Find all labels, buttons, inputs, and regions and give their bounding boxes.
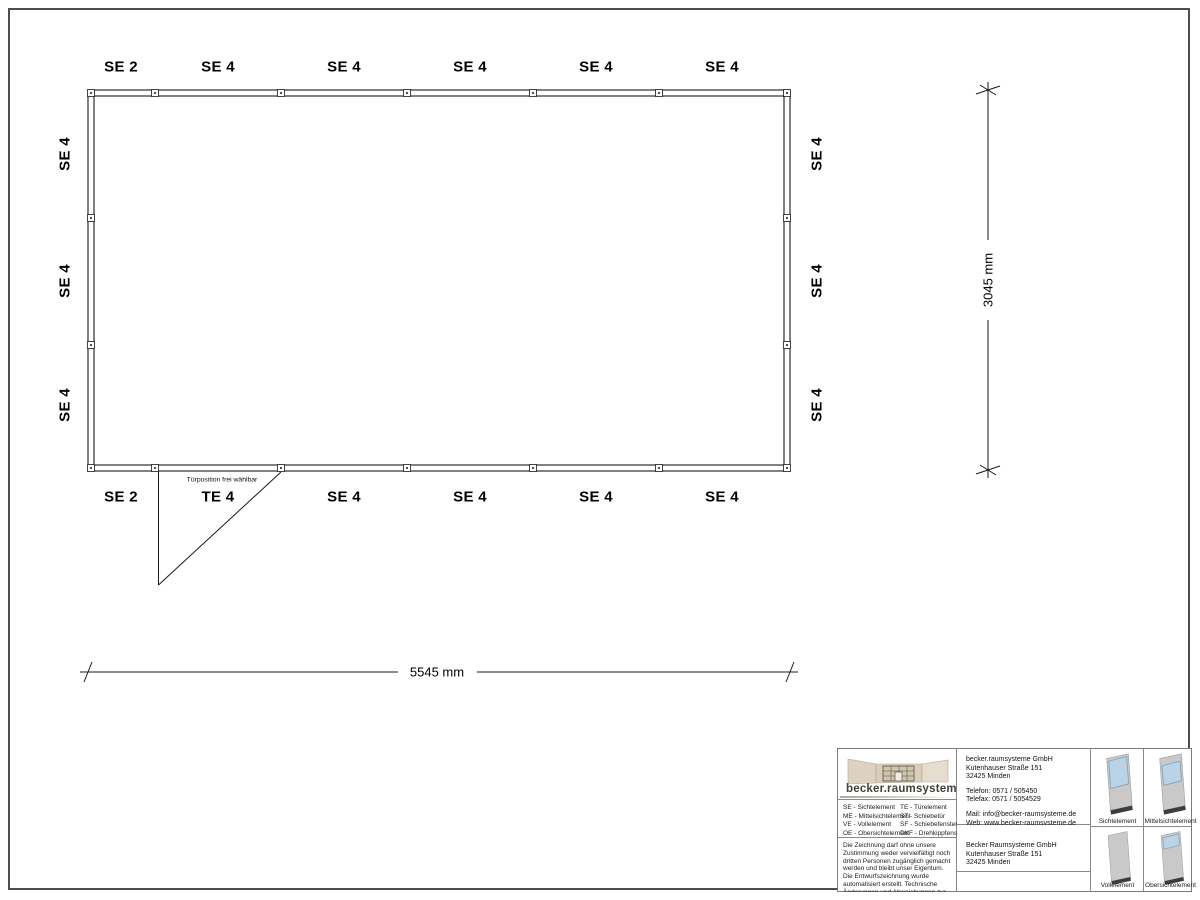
right-segment-label-1: SE 4 [809,137,826,171]
legend-item: SF - Schiebefenster [900,821,957,830]
wall-joints [88,90,791,472]
left-segment-label-1: SE 4 [57,137,74,171]
mittelsichtelement-icon [1146,751,1196,817]
vollelement-icon [1093,829,1143,887]
top-segment-label-2: SE 4 [201,59,235,76]
bottom-segment-label-3: SE 4 [327,489,361,506]
bottom-segment-label-6: SE 4 [705,489,739,506]
top-segment-label-3: SE 4 [327,59,361,76]
legend-cell: SE - Sichtelement ME - Mittelsichtelemen… [838,800,957,838]
manufacturer-contact-cell: becker.raumsysteme GmbH Kutenhauser Stra… [957,749,1091,825]
mittelsichtelement-cell: Mittelsichtelement [1144,749,1197,827]
logo-underline [840,796,954,798]
title-block: becker.raumsysteme® SE - Sichtelement ME… [837,748,1192,892]
element-caption: Sichtelement [1099,818,1137,825]
top-segment-label-5: SE 4 [579,59,613,76]
obersichtelement-cell: Obersichtelement [1144,827,1197,891]
company-city: 32425 Minden [966,773,1091,782]
logo-cell: becker.raumsysteme® [838,749,957,800]
customer-address-cell: Becker Raumsysteme GmbH Kutenhauser Stra… [957,825,1091,872]
width-dimension-text: 5545 mm [410,665,464,680]
customer-company: Becker Raumsysteme GmbH [966,842,1091,851]
legend-item: ST - Schiebetür [900,813,957,822]
customer-city: 32425 Minden [966,859,1091,868]
door-position-note: Türposition frei wählbar [187,477,258,484]
disclaimer-text: Die Zeichnung darf ohne unsere Zustimmun… [843,842,954,892]
company-phone: Telefon: 0571 / 505450 [966,788,1091,797]
legend-column-right: TE - Türelement ST - Schiebetür SF - Sch… [900,804,957,838]
joint-dots [90,92,788,469]
sichtelement-icon [1093,751,1143,817]
legend-item: DKF - Drehkippfenster [900,830,957,838]
obersichtelement-icon [1146,829,1196,887]
element-caption: Mittelsichtelement [1144,818,1196,825]
company-name: becker.raumsysteme GmbH [966,756,1091,765]
top-segment-label-4: SE 4 [453,59,487,76]
vollelement-cell: Vollelement [1091,827,1144,891]
right-segment-label-2: SE 4 [809,264,826,298]
company-street: Kutenhauser Straße 151 [966,765,1091,774]
right-segment-label-3: SE 4 [809,388,826,422]
wall-outline [88,90,790,471]
legend-item: TE - Türelement [900,804,957,813]
left-segment-label-3: SE 4 [57,388,74,422]
logo-wordmark: becker.raumsysteme® [846,783,957,795]
bottom-segment-label-2: TE 4 [202,489,235,506]
element-caption: Obersichtelement [1145,882,1196,889]
bottom-segment-label-5: SE 4 [579,489,613,506]
sichtelement-cell: Sichtelement [1091,749,1144,827]
becker-logo-graphic [846,751,950,785]
top-segment-label-1: SE 2 [104,59,138,76]
top-segment-label-6: SE 4 [705,59,739,76]
element-caption: Vollelement [1101,882,1135,889]
company-mail: Mail: info@becker-raumsysteme.de [966,811,1091,820]
left-segment-label-2: SE 4 [57,264,74,298]
height-dimension-text: 3045 mm [981,253,996,307]
customer-street: Kutenhauser Straße 151 [966,851,1091,860]
bottom-segment-label-4: SE 4 [453,489,487,506]
company-fax: Telefax: 0571 / 5054529 [966,796,1091,805]
disclaimer-cell: Die Zeichnung darf ohne unsere Zustimmun… [838,838,957,892]
bottom-segment-label-1: SE 2 [104,489,138,506]
